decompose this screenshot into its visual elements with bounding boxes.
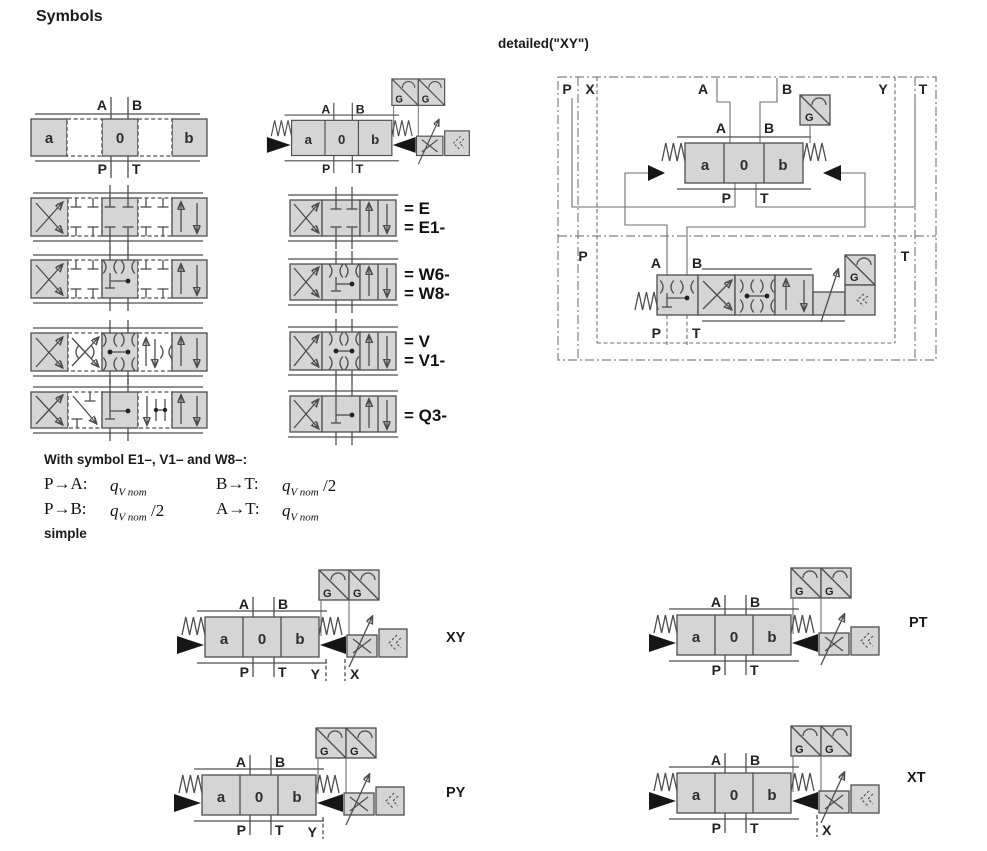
valve-py: G G A B P T a 0 b: [140, 711, 470, 851]
valve-pt: G G A B P T a 0 b: [615, 551, 945, 691]
variant-label-xt: XT: [907, 770, 926, 786]
position-0-label: 0: [338, 132, 345, 147]
spool-row-v-compact: = V = V1-: [288, 319, 445, 383]
solenoid-triangle-icon: [267, 137, 291, 153]
port-t-label: T: [356, 162, 364, 176]
port-a-label: A: [97, 97, 107, 113]
port-t-label: T: [750, 820, 759, 836]
position-b-label: b: [767, 787, 776, 804]
spool-label-w8: = W8-: [404, 284, 450, 303]
gauge-label: G: [795, 586, 804, 598]
port-b-label: B: [750, 594, 760, 610]
solenoid-triangle-icon: [320, 636, 346, 654]
spring-icon: [654, 773, 677, 791]
flow-lhs: P→B:: [44, 499, 87, 519]
simple-valve-symbol: G G A B P T a 0 b: [615, 709, 945, 849]
variable-throttle-icon: [344, 775, 374, 825]
flow-q: q: [110, 501, 119, 520]
spring-icon: [271, 120, 291, 136]
spring-icon: [392, 120, 412, 136]
port-p-label: P: [237, 822, 246, 838]
flow-q: q: [110, 476, 119, 495]
flow-lhs: B→T:: [216, 474, 259, 494]
gauge-label: G: [795, 744, 804, 756]
ext-port-b: B: [782, 81, 792, 97]
gauge-label: G: [353, 588, 362, 600]
proportional-symbol-box: [445, 131, 470, 156]
solenoid-triangle-icon: [317, 794, 343, 812]
pressure-gauge-box: G: [845, 255, 875, 285]
flow-value: qV nom /2: [110, 501, 164, 523]
port-t-label: T: [692, 325, 701, 341]
spool-label-e1: = E1-: [404, 218, 445, 237]
gauge-label: G: [350, 746, 359, 758]
ext-port-y: Y: [878, 81, 888, 97]
port-a-label: A: [321, 102, 330, 116]
port-a-label: A: [711, 594, 721, 610]
flow-sub: V nom: [291, 486, 319, 498]
gauge-label: G: [825, 586, 834, 598]
port-y-label: Y: [311, 666, 321, 682]
proportional-symbol-box: [851, 627, 879, 655]
port-t-label: T: [278, 664, 287, 680]
port-b-label: B: [132, 97, 142, 113]
port-x-label: X: [822, 822, 832, 838]
position-0-label: 0: [740, 157, 748, 174]
gauge-label: G: [395, 95, 403, 106]
port-b-label: B: [275, 754, 285, 770]
valve-overview: G G A B P T a 0 b: [237, 64, 527, 187]
variant-label-py: PY: [446, 785, 465, 801]
position-b-label: b: [778, 157, 787, 174]
spool-label-w6: = W6-: [404, 265, 450, 284]
variable-throttle-icon: [819, 615, 849, 665]
gauge-label: G: [825, 744, 834, 756]
port-a-label: A: [716, 120, 726, 136]
flow-sub: V nom: [119, 511, 147, 523]
pilot-triangle-icon: [648, 165, 665, 181]
variable-throttle-icon: [417, 120, 443, 164]
port-a-label: A: [651, 255, 661, 271]
port-t-label: T: [750, 662, 759, 678]
gauge-label: G: [805, 112, 814, 124]
port-b-label: B: [278, 596, 288, 612]
spring-icon: [179, 775, 202, 793]
flow-value: qV nom /2: [282, 476, 336, 498]
position-0-label: 0: [116, 130, 124, 147]
solenoid-triangle-icon: [174, 794, 201, 812]
position-a-label: a: [692, 787, 701, 804]
valve-outline-diagram: A B a 0 b P T: [31, 97, 207, 178]
port-a-label: A: [711, 752, 721, 768]
spool-row-q3-wide: [31, 379, 207, 441]
solenoid-triangle-icon: [649, 792, 676, 810]
proportional-symbol-box: [845, 285, 875, 315]
position-a-label: a: [220, 631, 229, 648]
ext-port-t: T: [919, 81, 928, 97]
flow-q: q: [282, 501, 291, 520]
variable-throttle-icon: [347, 617, 377, 667]
spring-icon: [654, 615, 677, 633]
valve-body: a 0 b: [677, 615, 791, 655]
valve-xy: G G A B P T a 0 b: [143, 553, 473, 693]
port-x-label: X: [350, 666, 360, 682]
port-p-label: P: [240, 664, 249, 680]
solenoid-triangle-icon: [792, 634, 818, 652]
detailed-circuit: P X A B Y T A B a 0 b P T: [545, 70, 945, 370]
position-b-label: b: [767, 629, 776, 646]
flow-lhs: A→T:: [216, 499, 260, 519]
simple-valve-symbol: G G A B P T a 0 b: [615, 551, 945, 691]
position-a-label: a: [305, 132, 313, 147]
position-b-label: b: [292, 789, 301, 806]
port-a-label: A: [236, 754, 246, 770]
spool-row-e-compact: = E = E1-: [288, 187, 445, 249]
position-0-label: 0: [258, 631, 266, 648]
spool-label-q3: = Q3-: [404, 406, 447, 425]
solenoid-triangle-icon: [792, 792, 818, 810]
port-b-label: B: [356, 102, 365, 116]
port-x-group: X: [345, 659, 360, 682]
valve-body: a 0 b: [677, 773, 791, 813]
port-b-label: B: [764, 120, 774, 136]
flow-suffix: /2: [147, 501, 164, 520]
port-b-label: B: [750, 752, 760, 768]
spring-icon: [182, 617, 205, 635]
position-0-label: 0: [730, 787, 738, 804]
port-p-label: P: [98, 161, 107, 177]
position-b-label: b: [295, 631, 304, 648]
position-a-label: a: [692, 629, 701, 646]
port-b-label: B: [692, 255, 702, 271]
gauge-label: G: [320, 746, 329, 758]
spool-row-w-compact: = W6- = W8-: [288, 251, 450, 313]
flow-note-heading: With symbol E1–, V1– and W8–:: [44, 452, 247, 467]
flow-sub: V nom: [119, 486, 147, 498]
spring-icon: [791, 615, 814, 633]
spool-row-v-wide: [31, 320, 207, 384]
port-a-label: A: [239, 596, 249, 612]
gauge-label: G: [850, 272, 859, 284]
port-t-label: T: [275, 822, 284, 838]
solenoid-triangle-icon: [393, 137, 416, 153]
position-a-label: a: [45, 130, 54, 147]
frame-port-p: P: [578, 248, 587, 264]
simple-heading: simple: [44, 526, 87, 541]
solenoid-triangle-icon: [177, 636, 204, 654]
flow-sub: V nom: [291, 511, 319, 523]
proportional-symbol-box: [379, 629, 407, 657]
variant-label-xy: XY: [446, 630, 465, 646]
spring-icon: [316, 775, 339, 793]
port-p-label: P: [712, 820, 721, 836]
pilot-triangle-icon: [823, 165, 841, 181]
valve-xt: G G A B P T a 0 b: [615, 709, 945, 849]
port-p-label: P: [722, 190, 731, 206]
port-p-label: P: [652, 325, 661, 341]
position-b-label: b: [371, 132, 379, 147]
gauge-label: G: [422, 95, 430, 106]
frame-port-t: T: [901, 248, 910, 264]
spool-label-v: = V: [404, 332, 431, 351]
proportional-symbol-box: [376, 787, 404, 815]
flow-value: qV nom: [110, 476, 147, 498]
variant-label-pt: PT: [909, 615, 928, 631]
position-a-label: a: [217, 789, 226, 806]
simple-valve-symbol: G G A B P T a 0 b: [237, 64, 527, 187]
spool-row-q3-compact: = Q3-: [288, 383, 447, 445]
spool-row-e-wide: [31, 185, 207, 249]
spool-row-w-wide: [31, 247, 207, 311]
simple-valve-symbol: G G A B P T a 0 b: [140, 711, 470, 851]
port-p-label: P: [322, 162, 330, 176]
spring-icon: [319, 617, 342, 635]
proportional-symbol-box: [851, 785, 879, 813]
pressure-gauge-box: G: [800, 95, 830, 143]
simple-valve-symbol: G G A B P T a 0 b: [143, 553, 473, 693]
valve-body: a 0 b: [292, 120, 392, 155]
flow-lhs: P→A:: [44, 474, 87, 494]
variable-throttle-icon: [819, 773, 849, 823]
main-valve: A B a 0 b P T G: [648, 95, 841, 206]
ext-port-a: A: [698, 81, 708, 97]
flow-suffix: /2: [319, 476, 336, 495]
port-x-group: X: [817, 815, 832, 838]
position-a-label: a: [701, 157, 710, 174]
valve-body: a 0 b: [202, 775, 316, 815]
valve-body: a 0 b: [205, 617, 319, 657]
gauge-label: G: [323, 588, 332, 600]
ext-port-x: X: [585, 81, 595, 97]
solenoid-triangle-icon: [649, 634, 676, 652]
spring-icon: [791, 773, 814, 791]
port-t-label: T: [760, 190, 769, 206]
pilot-valve: P T A B: [578, 248, 909, 345]
port-p-label: P: [712, 662, 721, 678]
spool-label-e: = E: [404, 199, 430, 218]
flow-q: q: [282, 476, 291, 495]
symbols-page: Symbols detailed("XY") A B a 0 b: [0, 0, 987, 851]
flow-value: qV nom: [282, 501, 319, 523]
port-t-label: T: [132, 161, 141, 177]
spool-label-v1: = V1-: [404, 351, 445, 370]
ext-port-p: P: [562, 81, 571, 97]
port-y-label: Y: [308, 824, 318, 840]
position-b-label: b: [184, 130, 193, 147]
position-0-label: 0: [730, 629, 738, 646]
position-0-label: 0: [255, 789, 263, 806]
